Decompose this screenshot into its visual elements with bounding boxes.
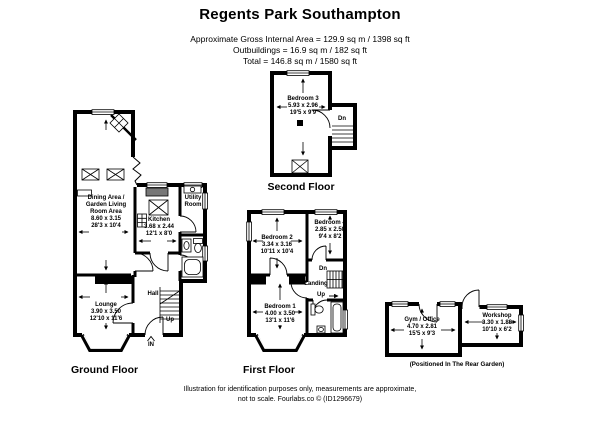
room-label-lounge: Lounge 3.90 x 3.50 12'10 x 11'6: [90, 302, 123, 323]
stairs-up-label-first: Up: [317, 292, 325, 299]
room-label-dining: Dining Area / Garden Living Room Area 8.…: [86, 195, 126, 230]
floor-label-first: First Floor: [243, 364, 295, 376]
total-area: Total = 146.8 sq m / 1580 sq ft: [0, 56, 600, 67]
room-name: Garden Living: [86, 202, 126, 209]
room-label-bedroom-2: Bedroom 2 3.34 x 3.16 10'11 x 10'4: [261, 235, 294, 256]
disclaimer: Illustration for identification purposes…: [0, 385, 600, 404]
room-dim-metric: 4.70 x 2.81: [404, 324, 439, 331]
room-name: Utility: [185, 195, 202, 202]
room-name: Workshop: [482, 313, 512, 320]
room-name: Bedroom 3: [287, 96, 318, 103]
room-dim-metric: 3.90 x 3.50: [90, 309, 123, 316]
room-dim-metric: 5.93 x 2.96: [287, 103, 318, 110]
room-label-bedroom-4: Bedroom 4 2.85 x 2.50 9'4 x 8'2: [314, 220, 345, 241]
room-dim-metric: 3.68 x 2.44: [144, 224, 174, 231]
room-name: Dining Area /: [86, 195, 126, 202]
room-dim-metric: 8.60 x 3.15: [86, 216, 126, 223]
room-label-utility: Utility Room: [185, 195, 202, 209]
entrance-label: IN: [148, 342, 154, 349]
gross-internal-area: Approximate Gross Internal Area = 129.9 …: [0, 34, 600, 45]
room-dim-metric: 3.34 x 3.16: [261, 242, 294, 249]
hall-label: Hall: [147, 291, 158, 298]
room-name: Room Area: [86, 209, 126, 216]
room-label-gym-office: Gym / Office 4.70 x 2.81 15'5 x 9'3: [404, 317, 439, 338]
room-dim-imperial: 19'5 x 9'9: [287, 110, 318, 117]
room-label-kitchen: Kitchen 3.68 x 2.44 12'1 x 8'0: [144, 217, 174, 238]
room-dim-imperial: 15'5 x 9'3: [404, 331, 439, 338]
room-dim-metric: 3.30 x 1.88: [482, 320, 512, 327]
outbuildings-area: Outbuildings = 16.9 sq m / 182 sq ft: [0, 45, 600, 56]
disclaimer-line: Illustration for identification purposes…: [0, 385, 600, 395]
stairs-down-label-first: Dn: [319, 266, 327, 273]
outbuildings-caption: (Positioned In The Rear Garden): [410, 361, 505, 368]
room-dim-imperial: 10'11 x 10'4: [261, 249, 294, 256]
floorplan-page: Regents Park Southampton Approximate Gro…: [0, 0, 600, 424]
room-label-bedroom-1: Bedroom 1 4.00 x 3.50 13'1 x 11'6: [264, 304, 295, 325]
room-label-bedroom-3: Bedroom 3 5.93 x 2.96 19'5 x 9'9: [287, 96, 318, 117]
room-name: Bedroom 4: [314, 220, 345, 227]
room-dim-imperial: 28'3 x 10'4: [86, 223, 126, 230]
room-dim-imperial: 9'4 x 8'2: [314, 234, 345, 241]
room-dim-imperial: 13'1 x 11'6: [264, 318, 295, 325]
landing-label: Landing: [304, 281, 327, 288]
area-summary: Approximate Gross Internal Area = 129.9 …: [0, 34, 600, 67]
room-name: Lounge: [90, 302, 123, 309]
room-dim-metric: 2.85 x 2.50: [314, 227, 345, 234]
page-title: Regents Park Southampton: [0, 6, 600, 23]
stairs-down-label-second: Dn: [338, 116, 346, 123]
room-dim-imperial: 12'10 x 11'6: [90, 316, 123, 323]
room-name: Kitchen: [144, 217, 174, 224]
room-name: Gym / Office: [404, 317, 439, 324]
stairs-up-label-ground: Up: [166, 317, 174, 324]
room-dim-imperial: 12'1 x 8'0: [144, 231, 174, 238]
room-name: Bedroom 1: [264, 304, 295, 311]
room-name: Room: [185, 202, 202, 209]
disclaimer-line: not to scale. Fourlabs.co © (ID1296679): [0, 395, 600, 405]
room-name: Bedroom 2: [261, 235, 294, 242]
room-label-workshop: Workshop 3.30 x 1.88 10'10 x 6'2: [482, 313, 512, 334]
floor-label-second: Second Floor: [267, 181, 334, 193]
room-dim-metric: 4.00 x 3.50: [264, 311, 295, 318]
room-dim-imperial: 10'10 x 6'2: [482, 327, 512, 334]
floor-label-ground: Ground Floor: [71, 364, 138, 376]
